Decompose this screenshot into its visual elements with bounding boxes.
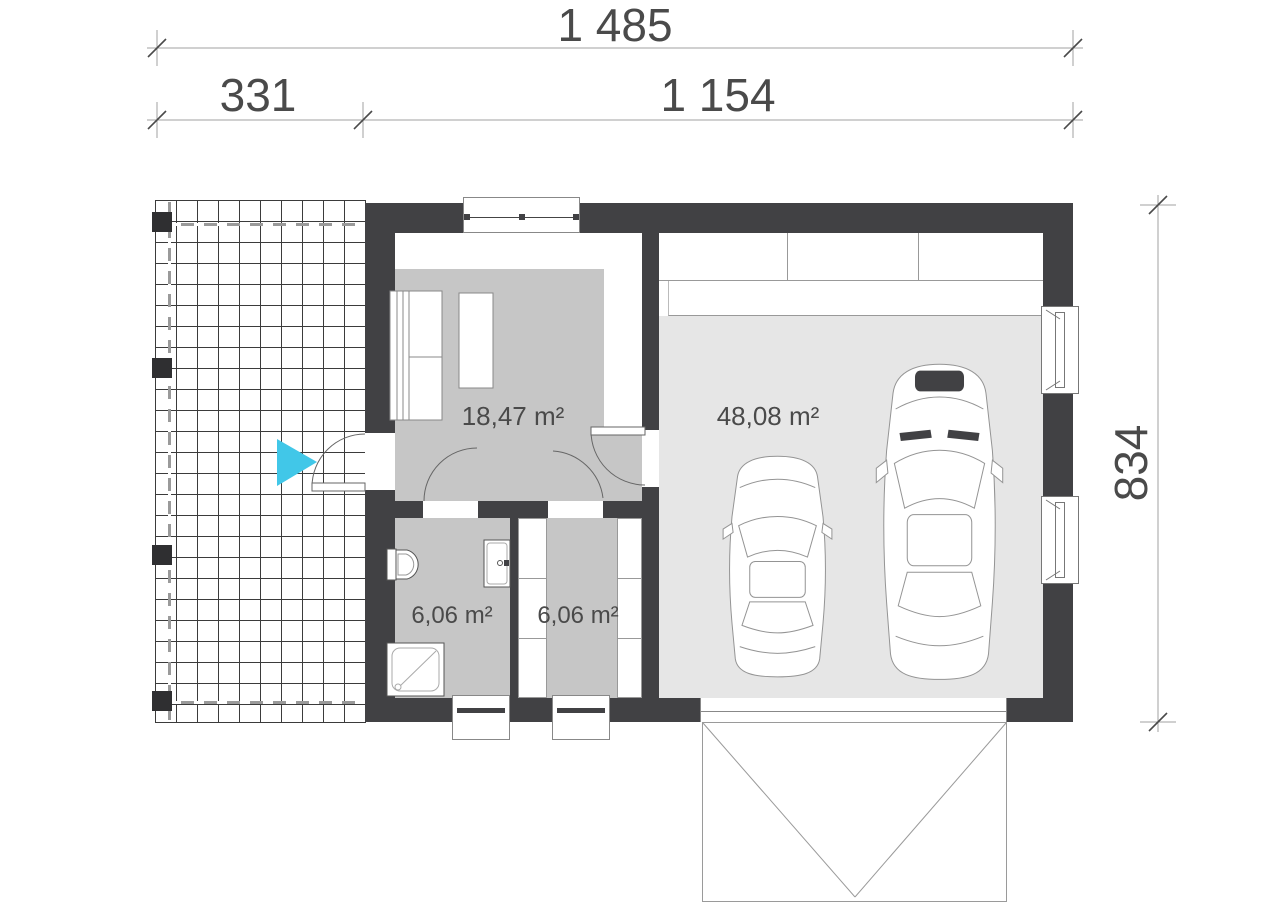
- window-casement: [1055, 312, 1065, 388]
- terrace-tile-grid: [155, 200, 366, 723]
- closet-shelf-line: [519, 638, 546, 639]
- living-room-area-label: 18,47 m²: [433, 403, 593, 429]
- dimension-house-depth-label: 834: [1108, 408, 1158, 518]
- closet-shelf-line: [618, 638, 641, 639]
- window-frame-post: [519, 214, 525, 220]
- bathroom-doorway: [423, 501, 478, 518]
- window-frame-post: [573, 214, 579, 220]
- dimension-total-width-label: 1 485: [515, 2, 715, 48]
- window-garage-right-upper: [1041, 306, 1079, 394]
- wardrobe-area-label: 6,06 m²: [503, 604, 653, 628]
- garage-floor: [659, 316, 1043, 698]
- closet-shelf-line: [519, 578, 546, 579]
- window-frame-post: [464, 214, 470, 220]
- garage-shelf-unit: [659, 233, 1043, 281]
- garage-door-opening: [700, 698, 1007, 722]
- garage-room-doorway: [642, 430, 659, 487]
- roof-overhang-dashed-top: [158, 223, 365, 226]
- wall-right: [1043, 203, 1073, 722]
- shelf-divider-line: [787, 233, 788, 280]
- terrace-post: [152, 212, 172, 232]
- wardrobe-doorway: [548, 501, 603, 518]
- garage-workbench: [668, 281, 1043, 316]
- terrace-post: [152, 545, 172, 565]
- closet-shelf-line: [618, 578, 641, 579]
- dimension-house-width-label: 1 154: [628, 72, 808, 118]
- window-sash-bar: [457, 708, 505, 713]
- garage-door-panel-line: [700, 711, 1007, 712]
- garage-area-label: 48,08 m²: [688, 403, 848, 429]
- garage-door-edge: [700, 698, 701, 722]
- shelf-divider-line: [918, 233, 919, 280]
- window-sash-bar: [557, 708, 605, 713]
- terrace-post: [152, 691, 172, 711]
- window-garage-right-lower: [1041, 496, 1079, 584]
- window-living-top: [463, 197, 580, 233]
- dimension-terrace-width-label: 331: [178, 72, 338, 118]
- garage-door-edge: [1006, 698, 1007, 722]
- window-wardrobe: [552, 695, 610, 740]
- driveway: [702, 722, 1007, 902]
- floor-plan-canvas: 1 485 331 1 154 834 18,47 m² 48,08 m² 6,…: [0, 0, 1280, 905]
- entrance-doorway: [365, 433, 395, 490]
- roof-overhang-dashed-left: [168, 202, 171, 720]
- roof-overhang-dashed-bottom: [158, 701, 365, 704]
- living-room-floor-strip: [604, 233, 642, 430]
- window-bathroom: [452, 695, 510, 740]
- terrace-post: [152, 358, 172, 378]
- window-casement: [1055, 502, 1065, 578]
